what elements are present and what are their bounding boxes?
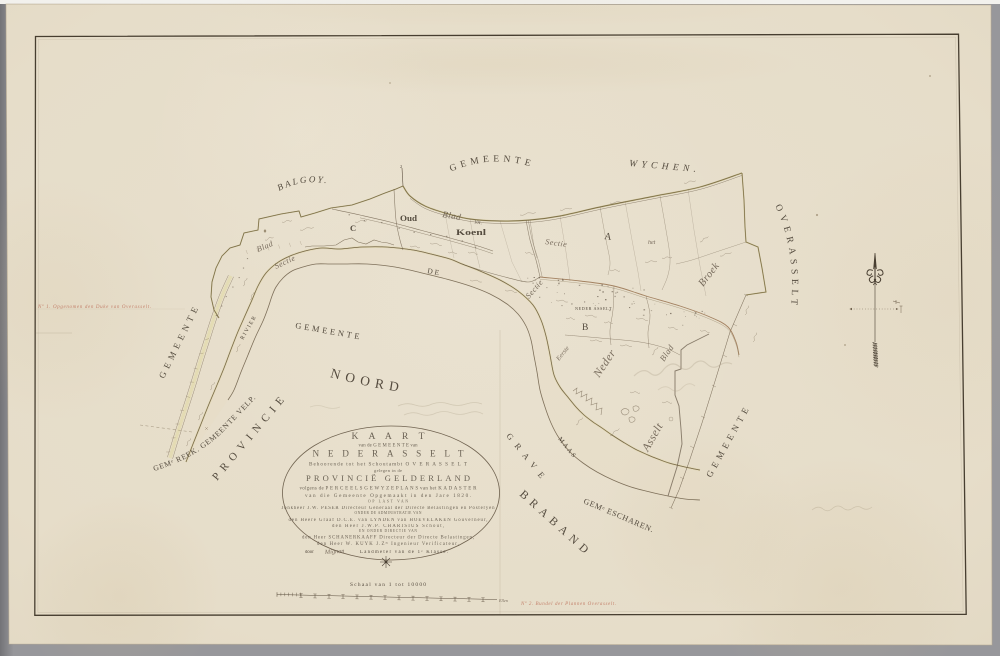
svg-text:Landmeter van de 1ᵉ Klasse.: Landmeter van de 1ᵉ Klasse.: [360, 550, 448, 555]
svg-text:den Heere Graaf D.C.E. van LYN: den Heere Graaf D.C.E. van LYNDEN van HO…: [289, 518, 488, 523]
svg-text:EN ONDER DIRECTIE VAN: EN ONDER DIRECTIE VAN: [359, 529, 417, 533]
svg-text:Behoorende tot het Schoutambt: Behoorende tot het Schoutambt O V E R A …: [309, 462, 468, 468]
svg-text:Mignon: Mignon: [324, 548, 345, 556]
svg-text:K A A R T: K A A R T: [352, 431, 425, 442]
svg-text:Nº 2. Bundel der Plannen Overa: Nº 2. Bundel der Plannen Overasselt.: [520, 601, 616, 607]
svg-text:den Heer W. KUYK J.Zᴺ Ingenie: den Heer W. KUYK J.Zᴺ Ingenieur Verifica…: [317, 541, 459, 547]
svg-text:Schaal van 1 tot 10000: Schaal van 1 tot 10000: [350, 582, 426, 588]
svg-text:Nº 1. Opgenomen den Duke van O: Nº 1. Opgenomen den Duke van Overasselt.: [37, 304, 151, 310]
svg-text:het: het: [648, 240, 656, 246]
svg-text:2: 2: [400, 164, 402, 169]
svg-text:OP LAST VAN: OP LAST VAN: [368, 499, 408, 503]
svg-text:NEDER ASSELT: NEDER ASSELT: [575, 306, 612, 311]
svg-text:Oud: Oud: [400, 214, 418, 223]
svg-text:volgens de P E R C E E L S G E: volgens de P E R C E E L S G E W Y Z E P…: [300, 487, 478, 492]
svg-text:C: C: [350, 223, 356, 233]
svg-text:Koenl: Koenl: [456, 228, 487, 237]
svg-text:door: door: [305, 550, 314, 555]
svg-text:ONDER DE ADMINISTRATIE VAN: ONDER DE ADMINISTRATIE VAN: [355, 511, 422, 515]
svg-text:B: B: [582, 323, 588, 333]
svg-text:Ellen: Ellen: [498, 598, 508, 603]
svg-text:den Heer SCHANERKAAFF Directeu: den Heer SCHANERKAAFF Directeur der Dire…: [302, 536, 474, 541]
